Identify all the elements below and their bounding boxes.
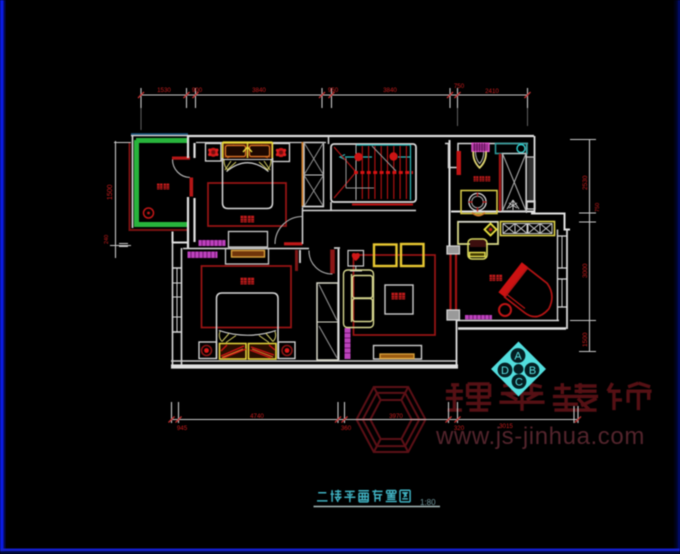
svg-text:1530: 1530 (157, 87, 171, 94)
svg-text:750: 750 (454, 83, 465, 90)
svg-text:4740: 4740 (250, 413, 264, 420)
svg-text:320: 320 (454, 425, 465, 432)
svg-text:D: D (501, 365, 509, 377)
svg-text:2410: 2410 (485, 88, 499, 95)
svg-text:A: A (514, 351, 522, 363)
svg-text:3000: 3000 (582, 263, 589, 278)
svg-text:www.js-jinhua.com: www.js-jinhua.com (435, 423, 645, 450)
svg-text:B: B (529, 365, 536, 377)
svg-text:3970: 3970 (389, 413, 403, 420)
svg-text:900: 900 (192, 87, 203, 94)
svg-text:1500: 1500 (107, 184, 114, 200)
svg-text:1500: 1500 (582, 332, 589, 347)
svg-text:C: C (515, 377, 523, 389)
svg-text:945: 945 (177, 425, 188, 432)
svg-text:240: 240 (104, 235, 110, 244)
svg-text:3840: 3840 (252, 87, 266, 94)
svg-text:3015: 3015 (499, 423, 513, 430)
svg-text:3840: 3840 (383, 87, 397, 94)
svg-text:1:80: 1:80 (420, 498, 436, 507)
svg-text:750: 750 (595, 203, 601, 212)
svg-text:2530: 2530 (582, 175, 589, 190)
svg-text:360: 360 (341, 425, 352, 432)
svg-text:950: 950 (328, 87, 339, 94)
